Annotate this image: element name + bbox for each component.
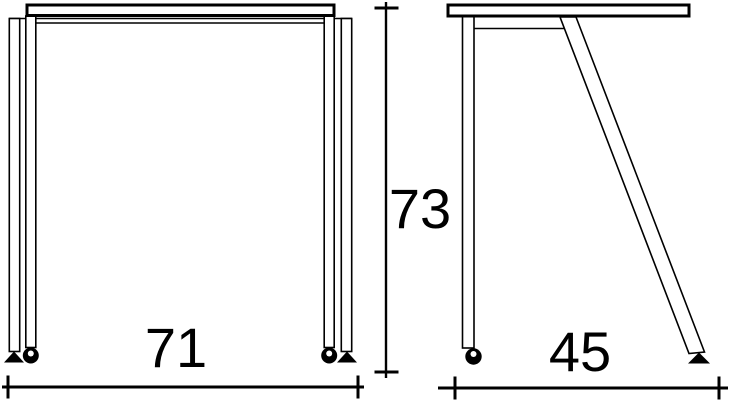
- front-left-glide-foot: [4, 352, 24, 363]
- front-rear-left-leg: [9, 19, 19, 352]
- wheel-hub: [28, 351, 34, 357]
- front-right-glide-foot: [337, 352, 357, 363]
- furniture-dimension-drawing: 71 73 45: [0, 0, 734, 404]
- front-tabletop: [27, 5, 334, 16]
- technical-drawing-svg: 71 73 45: [0, 0, 734, 404]
- side-glide-foot: [688, 353, 710, 364]
- height-dimension: 73: [375, 2, 452, 378]
- front-front-left-leg: [26, 16, 36, 348]
- front-view: [4, 5, 357, 364]
- width-dimension: 71: [2, 316, 364, 399]
- wheel-hub: [326, 351, 332, 357]
- front-rear-right-leg: [341, 19, 351, 352]
- front-front-right-leg: [324, 16, 334, 348]
- front-right-caster-wheel: [321, 348, 337, 364]
- wheel-hub: [471, 351, 477, 357]
- side-front-leg: [463, 15, 475, 348]
- height-dimension-label: 73: [389, 177, 451, 240]
- width-dimension-label: 71: [145, 316, 207, 379]
- side-tabletop: [448, 5, 689, 16]
- depth-dimension-label: 45: [549, 320, 611, 383]
- side-rear-angled-leg: [560, 17, 705, 354]
- side-view: [448, 5, 710, 365]
- front-left-caster-wheel: [23, 348, 39, 364]
- side-caster-wheel: [465, 348, 481, 364]
